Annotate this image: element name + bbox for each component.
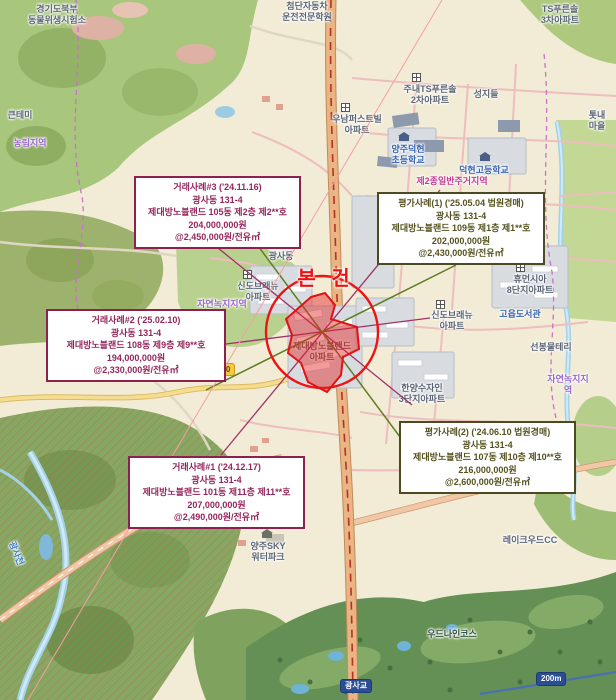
bridge-name-badge: 광사교 [340,679,372,693]
callout-price: 204,000,000원 [138,219,297,232]
map-label-gov-lab: 경기도북부 동물위생시험소 [28,4,86,26]
school-icon [479,152,491,162]
callout-sale-2[interactable]: 거래사례#2 ('25.02.10) 광사동 131-4 제대방노블랜드 108… [46,309,226,382]
callout-address: 광사동 131-4 [381,210,541,223]
callout-unit-price: @2,490,000원/전유㎡ [132,511,301,524]
callout-unit: 제대방노블랜드 107동 제10층 제10**호 [403,451,572,464]
map-label-goeup-library: 고읍도서관 [499,309,540,320]
map-label-zone2: 제2종일반주거지역 [416,176,487,187]
callout-title: 거래사례#1 ('24.12.17) [132,461,301,474]
map-label-woodnine: 우드나인코스 [427,629,477,640]
subject-label: 본 건 [297,262,354,291]
map-stage[interactable]: 경기도북부 동물위생시험소 첨단자동차 운전전문학원 TS푸른솔 3차아파트 주… [0,0,616,700]
apartment-icon [436,300,445,309]
callout-unit-price: @2,430,000원/전유㎡ [381,247,541,260]
callout-price: 202,000,000원 [381,235,541,248]
callout-sale-3[interactable]: 거래사례#3 ('24.11.16) 광사동 131-4 제대방노블랜드 105… [134,176,301,249]
map-label-nonglim-zone: 농림지역 [13,138,46,149]
map-label-driving-school: 첨단자동차 운전전문학원 [282,1,332,23]
callout-unit-price: @2,600,000원/전유㎡ [403,476,572,489]
school-icon [398,132,410,142]
map-label-ts3-apt: TS푸른솔 3차아파트 [541,4,579,26]
map-label-totnae: 톳내마을 [588,110,607,132]
apartment-icon [243,270,252,279]
map-label-sindo-east: 신도브래뉴 아파트 [431,310,472,332]
map-label-nokji-right: 자연녹지지역 [544,374,592,396]
map-label-high-school: 덕현고등학교 [459,165,509,176]
map-label-elem-school: 양주덕현 초등학교 [391,144,424,166]
callout-title: 거래사례#2 ('25.02.10) [50,314,222,327]
map-label-gwangsadong: 광사동 [269,251,294,262]
callout-title: 거래사례#3 ('24.11.16) [138,181,297,194]
callout-appraisal-1[interactable]: 평가사례(1) ('25.05.04 법원경매) 광사동 131-4 제대방노블… [377,192,545,265]
map-scale-badge: 200m [536,672,566,686]
apartment-icon [412,73,421,82]
callout-price: 216,000,000원 [403,464,572,477]
callout-unit: 제대방노블랜드 101동 제11층 제11**호 [132,486,301,499]
callout-unit: 제대방노블랜드 109동 제1층 제1**호 [381,222,541,235]
callout-unit-price: @2,330,000원/전유㎡ [50,364,222,377]
map-label-keuntemi: 큰테미 [8,110,33,121]
callout-appraisal-2[interactable]: 평가사례(2) ('24.06.10 법원경매) 광사동 131-4 제대방노블… [399,421,576,494]
callout-unit: 제대방노블랜드 105동 제2층 제2**호 [138,206,297,219]
callout-address: 광사동 131-4 [132,474,301,487]
map-label-unam-apt: 우남퍼스트빌 아파트 [332,114,382,136]
callout-unit: 제대방노블랜드 108동 제9층 제9**호 [50,339,222,352]
map-label-seongjideul: 성지들 [474,89,499,100]
map-label-ts2-apt: 주내TS푸른솔 2차아파트 [404,84,457,106]
callout-address: 광사동 131-4 [138,194,297,207]
callout-title: 평가사례(2) ('24.06.10 법원경매) [403,426,572,439]
callout-unit-price: @2,450,000원/전유㎡ [138,231,297,244]
callout-address: 광사동 131-4 [50,327,222,340]
waterpark-icon [261,529,273,539]
callout-price: 207,000,000원 [132,499,301,512]
callout-sale-1[interactable]: 거래사례#1 ('24.12.17) 광사동 131-4 제대방노블랜드 101… [128,456,305,529]
apartment-icon [341,103,350,112]
map-label-lakewood-cc: 레이크우드CC [503,535,557,546]
map-label-seonbong: 선봉물테리 [530,342,571,353]
map-label-humansia: 휴먼시아 8단지아파트 [507,274,553,296]
callout-address: 광사동 131-4 [403,439,572,452]
callout-price: 194,000,000원 [50,352,222,365]
map-label-waterpark: 양주SKY 워터파크 [250,541,285,563]
callout-title: 평가사례(1) ('25.05.04 법원경매) [381,197,541,210]
map-label-hanyang: 한양수자인 3단지아파트 [399,383,445,405]
map-label-subject-apt: 제대방노블랜드 아파트 [293,341,351,363]
